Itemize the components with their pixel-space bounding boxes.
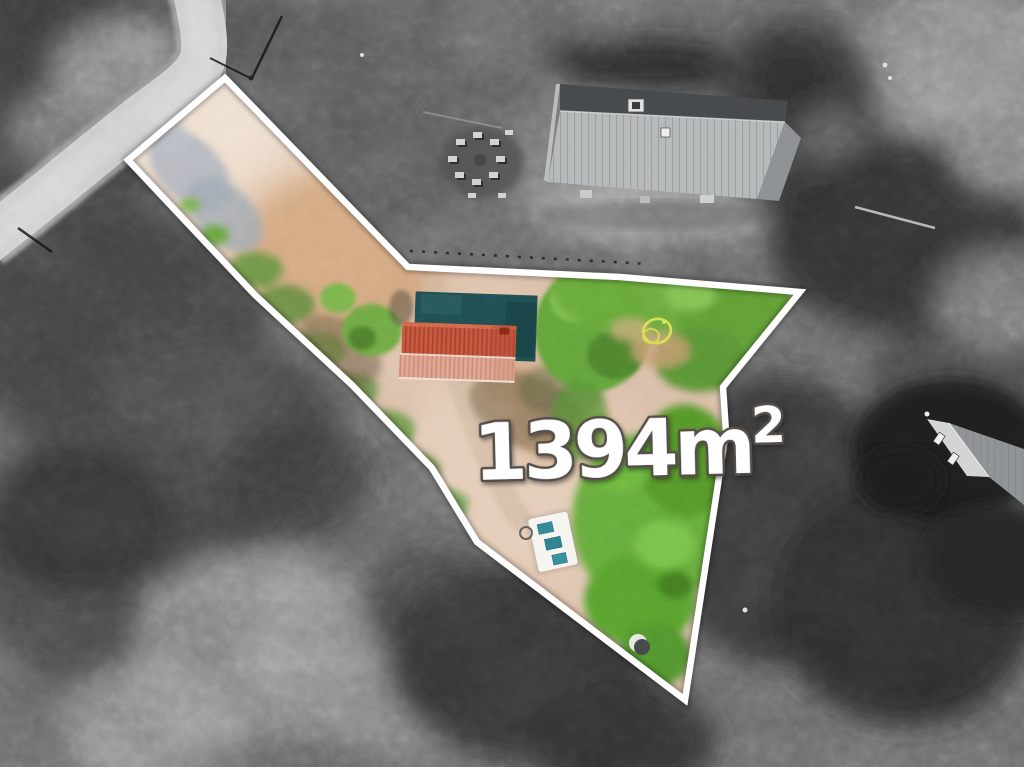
aerial-photo: 1394m2 [0, 0, 1024, 767]
area-label: 1394m2 [472, 396, 788, 499]
area-value: 1394m [472, 402, 753, 499]
area-superscript: 2 [750, 396, 786, 455]
aerial-photo-canvas: 1394m2 [0, 0, 1024, 767]
photo-grain [0, 0, 1024, 767]
